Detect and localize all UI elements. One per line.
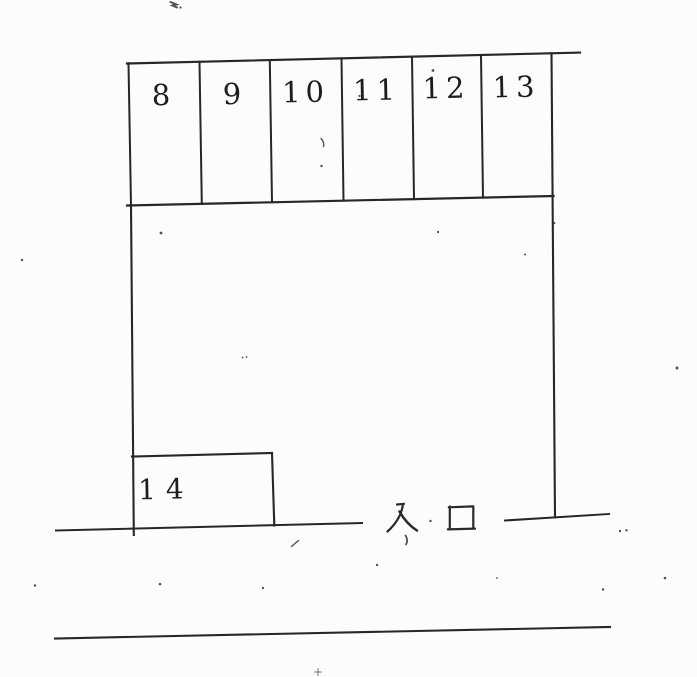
road-lines (55, 514, 610, 639)
stall-number-9: 9 (199, 78, 271, 110)
stall-number-13: 13 (480, 71, 553, 103)
stall-number-12: 12 (411, 72, 482, 104)
stall-number-11: 11 (341, 74, 413, 106)
entrance-label (383, 500, 478, 536)
scanned-parking-diagram: 8 9 10 11 12 13 14 (0, 0, 697, 677)
stall-number-10: 10 (269, 76, 343, 108)
stall-number-14: 14 (138, 473, 259, 506)
stall-number-8: 8 (127, 79, 201, 111)
